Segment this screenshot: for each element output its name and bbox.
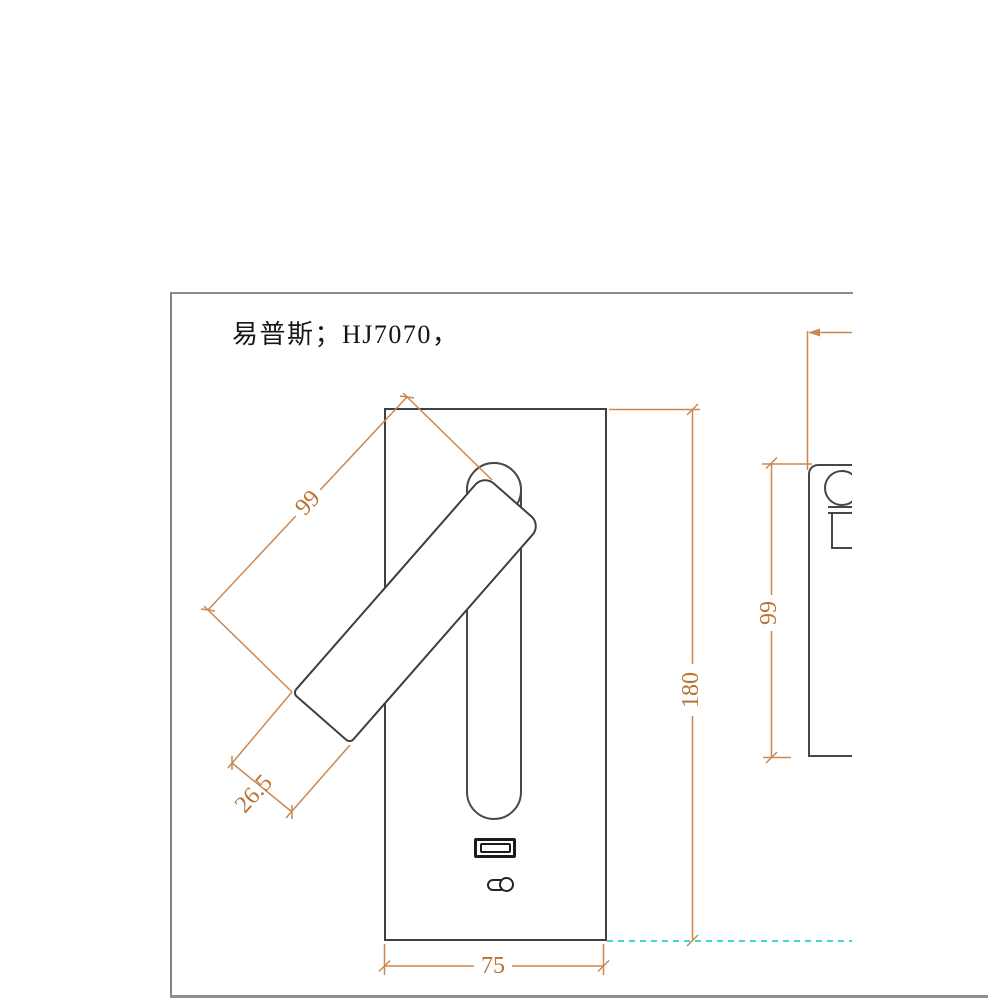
sheet-frame-left-border xyxy=(170,292,172,997)
dim-75 xyxy=(379,944,609,975)
drawing-title: 易普斯；HJ7070， xyxy=(232,314,459,351)
svg-text:180: 180 xyxy=(678,672,704,708)
usb-port-contact xyxy=(480,843,511,853)
dim-label-75: 75 xyxy=(474,953,512,979)
side-view xyxy=(755,325,852,770)
technical-drawing-page: 易普斯；HJ7070， xyxy=(0,0,1000,1000)
sheet-frame-bottom-border xyxy=(170,995,988,998)
switch-knob-icon xyxy=(499,877,514,892)
svg-text:75: 75 xyxy=(481,953,505,979)
side-view-lamp-head-bulge xyxy=(824,470,852,506)
svg-text:99: 99 xyxy=(290,485,325,520)
dim-180 xyxy=(609,404,700,946)
dim-label-99-front: 99 xyxy=(286,481,330,525)
sheet-frame-top-border xyxy=(170,292,853,294)
side-view-collar xyxy=(828,506,852,514)
svg-text:26.5: 26.5 xyxy=(230,770,278,818)
dim-label-26-5: 26.5 xyxy=(230,770,278,818)
dim-label-180: 180 xyxy=(678,664,704,716)
side-view-bracket xyxy=(831,514,852,549)
